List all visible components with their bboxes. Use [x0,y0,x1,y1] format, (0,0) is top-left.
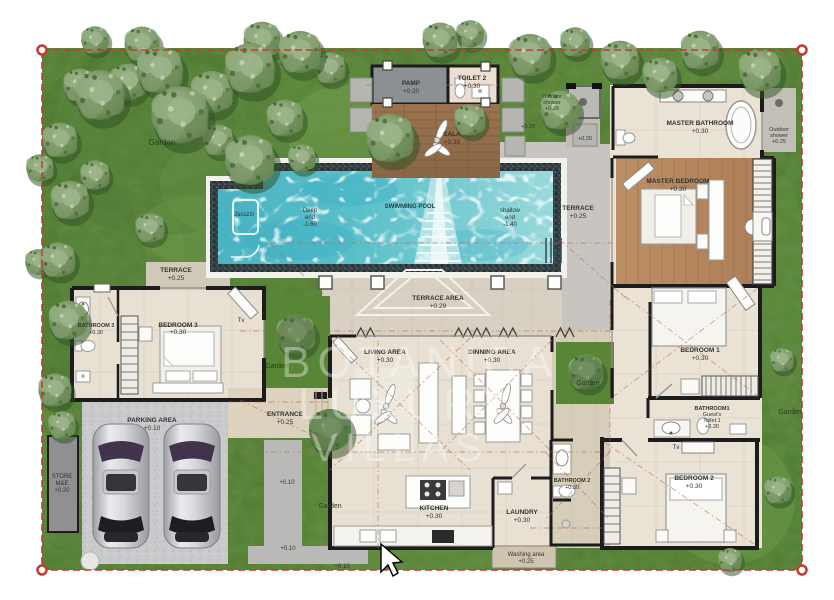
svg-text:+0.20: +0.20 [403,88,420,95]
svg-text:+0.30: +0.30 [514,517,531,524]
svg-text:+0.20: +0.20 [578,136,592,142]
svg-text:+0.20: +0.20 [54,488,70,494]
svg-text:LAUNDRY: LAUNDRY [506,509,538,516]
svg-text:+0.30: +0.30 [705,424,719,430]
svg-text:+0.30: +0.30 [89,330,103,336]
svg-text:TERRACE: TERRACE [562,205,594,212]
svg-text:+0.10: +0.10 [279,480,295,486]
svg-text:STORE: STORE [52,474,73,480]
svg-text:Garden: Garden [778,409,801,416]
svg-text:Garden: Garden [318,503,341,510]
svg-text:VILLAS: VILLAS [311,426,489,470]
svg-text:+0.10: +0.10 [280,546,296,552]
svg-text:+0.29: +0.29 [430,303,447,310]
svg-text:MASTER BATHROOM: MASTER BATHROOM [666,120,733,127]
svg-text:+0.25: +0.25 [168,275,185,282]
svg-text:+0.10: +0.10 [144,425,161,432]
svg-text:+0.30: +0.30 [692,355,709,362]
svg-text:TERRACE AREA: TERRACE AREA [412,295,464,302]
svg-text:BEDROOM 2: BEDROOM 2 [674,475,714,482]
svg-text:KITCHEN: KITCHEN [420,505,449,512]
svg-text:shallow: shallow [500,208,521,214]
svg-text:LUXURY: LUXURY [298,380,518,429]
svg-text:TERRACE: TERRACE [160,267,192,274]
svg-text:M&E: M&E [55,481,68,487]
svg-text:+0.20: +0.20 [521,124,535,130]
svg-text:BATHROOM 2: BATHROOM 2 [554,478,591,484]
svg-text:+0.25: +0.25 [277,419,294,426]
svg-text:SWIMMING POOL: SWIMMING POOL [385,204,436,210]
svg-text:+0.25: +0.25 [570,213,587,220]
svg-text:+0.30: +0.30 [170,329,187,336]
svg-text:Deep: Deep [303,208,318,214]
svg-text:+0.30: +0.30 [692,128,709,135]
svg-text:Washing area: Washing area [508,552,545,558]
svg-text:MASTER BEDROOM: MASTER BEDROOM [646,178,709,185]
svg-text:BATHROOM 3: BATHROOM 3 [78,323,115,329]
svg-text:SALA: SALA [443,131,461,138]
svg-text:+0.25: +0.25 [518,559,534,565]
svg-text:Garden: Garden [576,380,599,387]
svg-text:-1.60: -1.60 [303,222,317,228]
svg-text:Tv: Tv [673,445,680,451]
svg-text:Tv: Tv [238,318,245,324]
svg-text:BEDROOM 1: BEDROOM 1 [680,347,720,354]
svg-text:end: end [505,215,515,221]
svg-text:PAMP: PAMP [402,80,421,87]
svg-text:BEDROOM 3: BEDROOM 3 [158,322,198,329]
svg-text:Garden: Garden [149,138,176,147]
svg-text:+0.25: +0.25 [545,106,559,112]
svg-text:end: end [305,215,315,221]
svg-text:+0.30: +0.30 [565,485,579,491]
svg-text:+0.25: +0.25 [772,139,786,145]
svg-text:+0.30: +0.30 [670,186,687,193]
svg-text:+0.30: +0.30 [426,513,443,520]
svg-text:Jacuzzi: Jacuzzi [234,212,254,218]
svg-text:+0.30: +0.30 [464,83,481,90]
svg-text:+0.30: +0.30 [686,483,703,490]
svg-text:+0.10: +0.10 [334,564,350,570]
svg-text:+0.30: +0.30 [444,139,461,146]
svg-text:PARKING AREA: PARKING AREA [127,417,177,424]
svg-text:TOILET 2: TOILET 2 [458,75,487,82]
svg-text:-1.40: -1.40 [503,222,517,228]
